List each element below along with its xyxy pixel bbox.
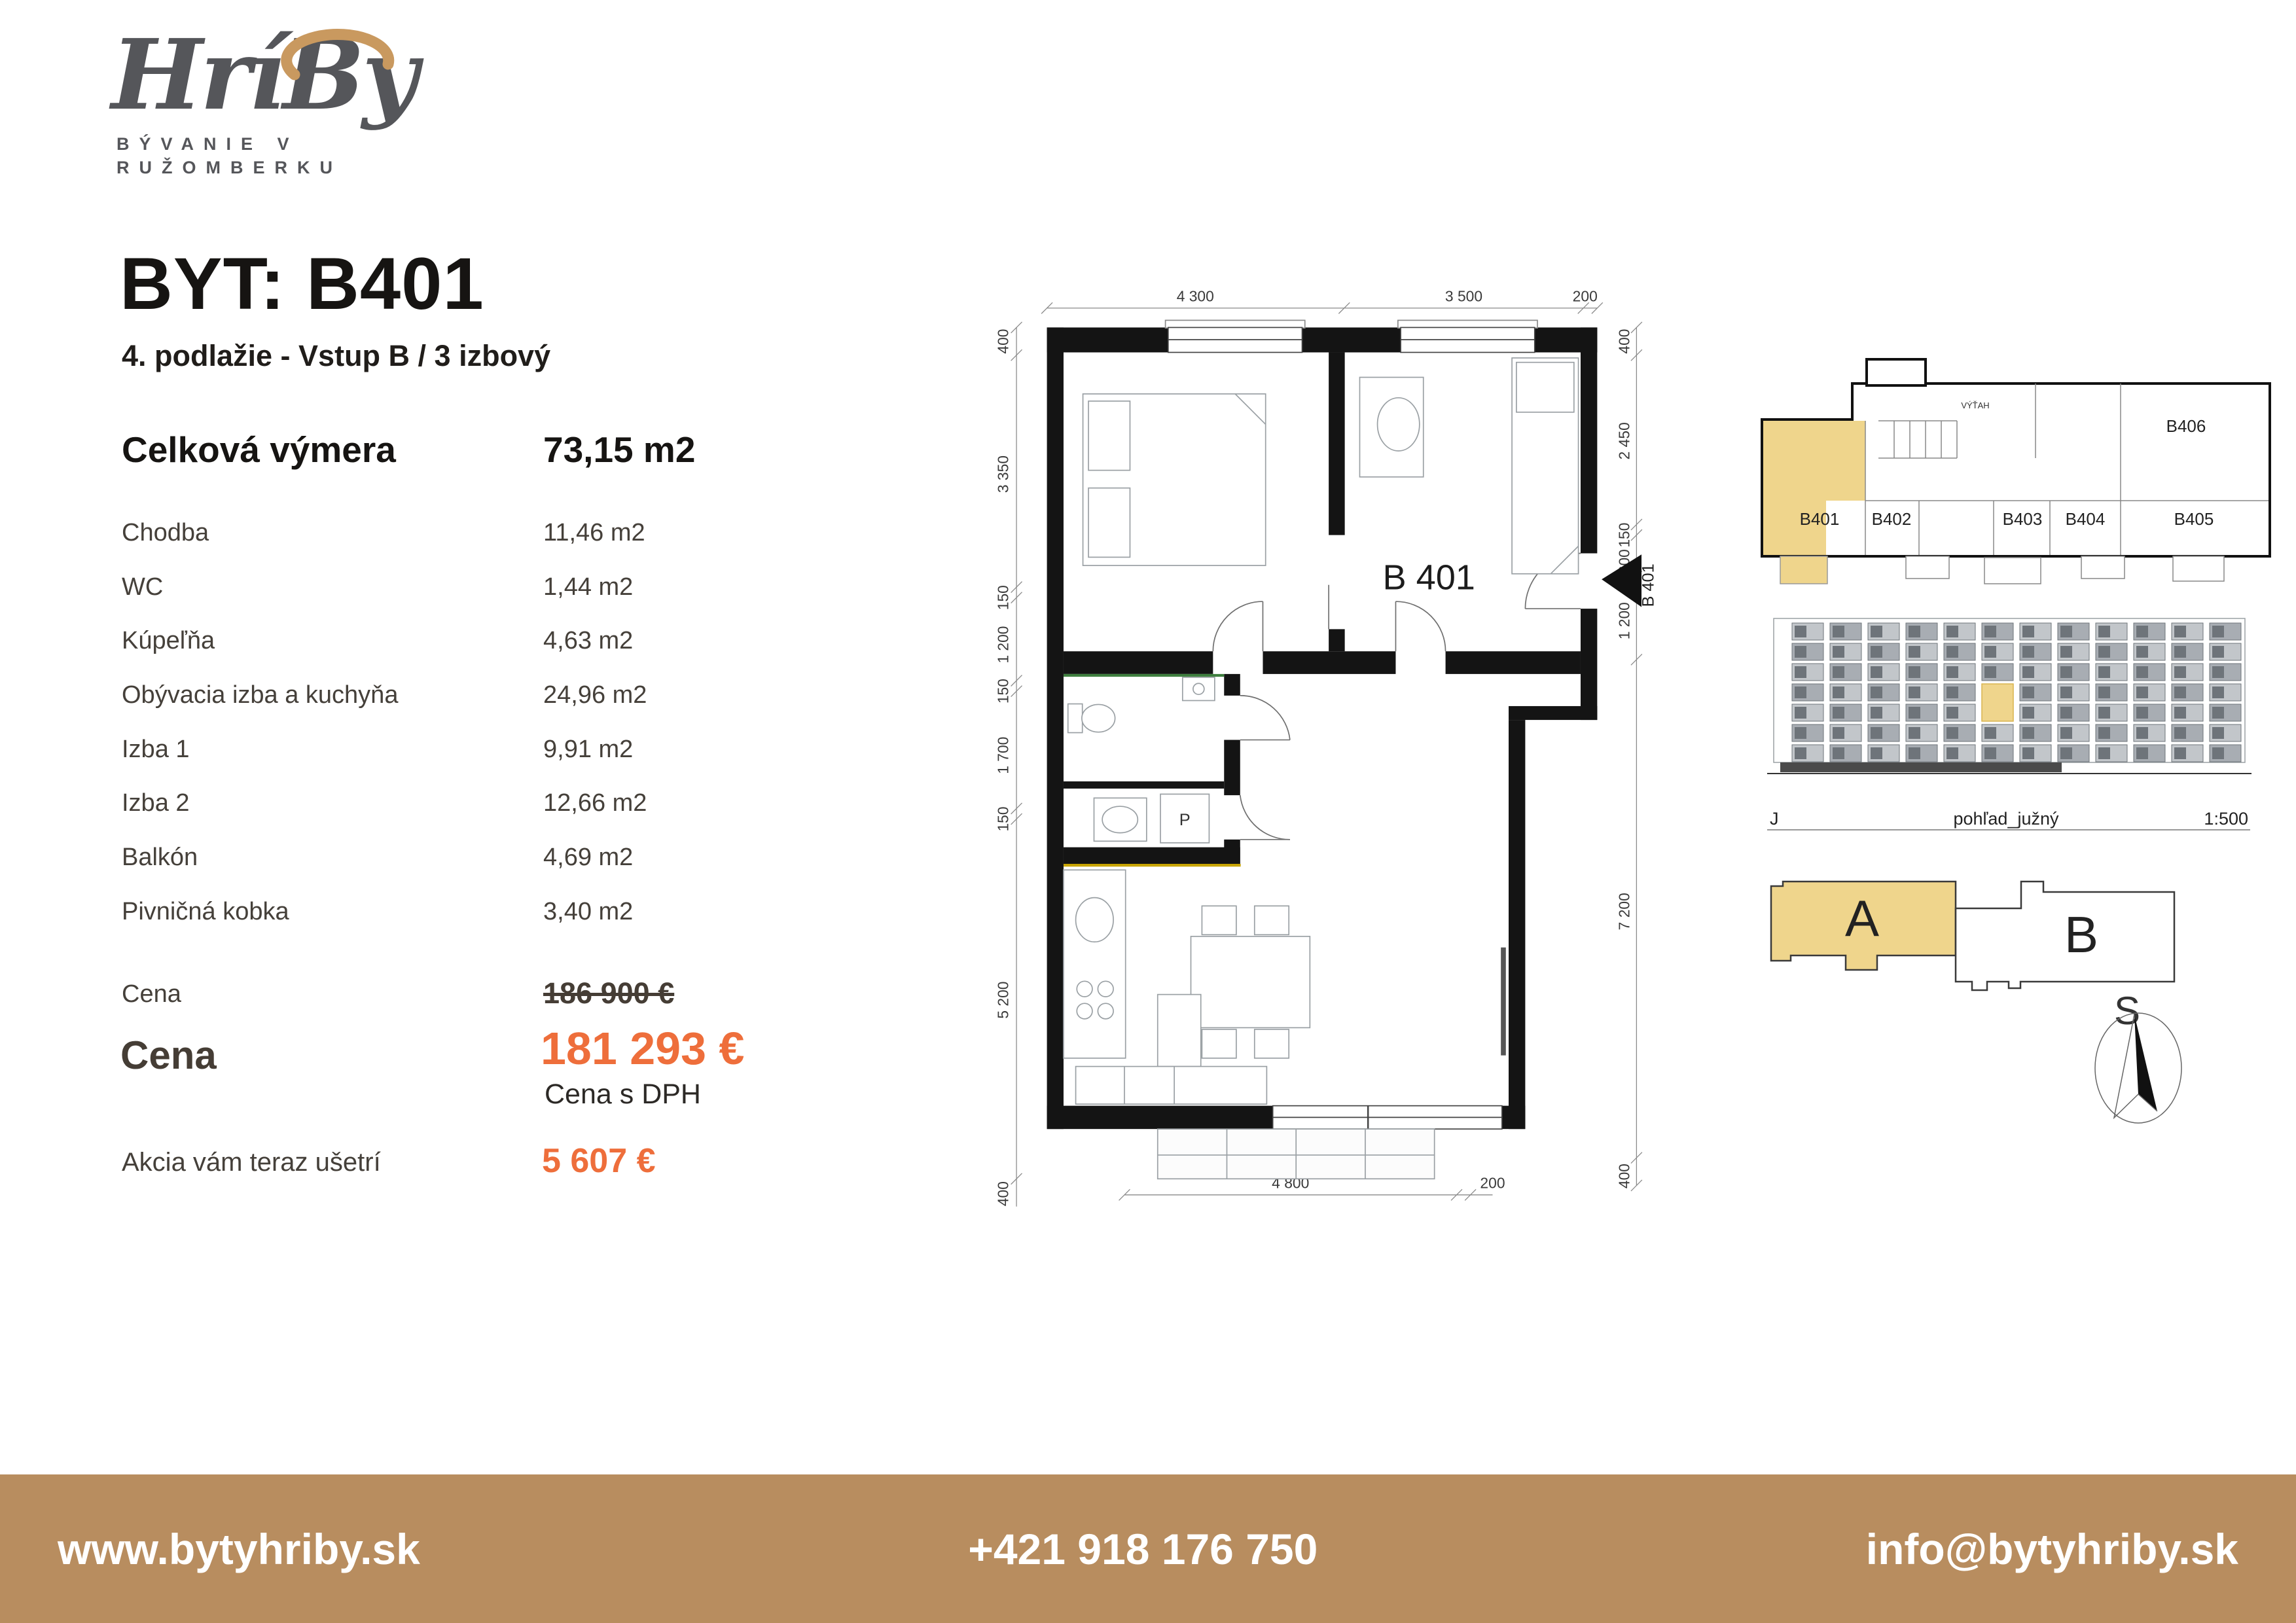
svg-text:1:500: 1:500 [2204,809,2248,829]
logo-tagline-1: BÝVANIE V [117,132,416,156]
svg-text:B401: B401 [1800,509,1840,529]
elevator-label: VÝŤAH [1961,401,1989,410]
site-plan-drawing: B401 B402 B403 B404 B405 B406 VÝŤAH [1754,353,2278,596]
balcony [1158,1129,1435,1179]
room-row-label: WC [122,573,163,601]
block-a-label: A [1845,889,1879,947]
room-row-value: 12,66 m2 [543,789,647,817]
footer-bar: www.bytyhriby.sk +421 918 176 750 info@b… [0,1474,2296,1623]
elevation-caption: J pohľad_južný 1:500 [1767,809,2250,830]
logo-mushroom-arc-icon [278,18,403,84]
svg-text:1 700: 1 700 [994,737,1011,774]
room-row-value: 24,96 m2 [543,681,647,709]
new-price-label: Cena [120,1033,217,1078]
tv-icon [1501,948,1506,1056]
svg-text:150: 150 [994,806,1011,831]
entry-arrow-icon: B 401 [1602,554,1658,607]
svg-text:200: 200 [1573,288,1598,305]
svg-text:J: J [1770,809,1779,829]
washer-label: P [1179,811,1191,829]
entry-unit-label: B 401 [1640,563,1658,607]
flyer-page: HríBy BÝVANIE V RUŽOMBERKU BYT: B401 4. … [0,0,2296,1623]
svg-text:5 200: 5 200 [994,982,1011,1019]
elevation-drawing: J pohľad_južný 1:500 [1761,609,2258,834]
svg-text:400: 400 [1615,329,1632,353]
brand-logo: HríBy BÝVANIE V RUŽOMBERKU [111,26,416,180]
block-b-label: B [2064,906,2098,963]
svg-text:B406: B406 [2166,416,2206,436]
svg-text:1 200: 1 200 [994,626,1011,663]
svg-text:400: 400 [994,1181,1011,1206]
savings-label: Akcia vám teraz ušetrí [122,1148,381,1177]
room-row-label: Balkón [122,844,198,872]
room-row-label: Chodba [122,519,209,547]
footer-website[interactable]: www.bytyhriby.sk [58,1524,420,1574]
room-row-label: Izba 2 [122,789,190,817]
svg-text:B403: B403 [2003,509,2043,529]
floorplan-drawing: 4 300 3 500 200 4 800 200 400 3 350 150 [992,275,1656,1216]
vat-note: Cena s DPH [545,1079,701,1111]
unit-label: B 401 [1382,558,1475,597]
page-subtitle: 4. podlažie - Vstup B / 3 izbový [122,339,550,373]
block-schematic: A B S [1728,870,2225,1132]
room-row-value: 1,44 m2 [543,573,633,601]
total-area-value: 73,15 m2 [543,429,695,471]
svg-text:3 350: 3 350 [994,455,1011,493]
footer-email[interactable]: info@bytyhriby.sk [1866,1524,2238,1574]
page-title: BYT: B401 [120,247,484,321]
svg-text:B404: B404 [2066,509,2106,529]
svg-text:200: 200 [1480,1175,1505,1192]
svg-text:pohľad_južný: pohľad_južný [1954,809,2059,829]
room-row-label: Izba 1 [122,736,190,764]
room-row-label: Obývacia izba a kuchyňa [122,681,398,709]
room-row-value: 3,40 m2 [543,898,633,926]
room-row-value: 4,69 m2 [543,844,633,872]
room-row-label: Kúpeľňa [122,627,215,655]
svg-text:150: 150 [994,585,1011,610]
old-price-value: 186 900 € [543,976,674,1010]
svg-text:150: 150 [994,679,1011,704]
room-row-label: Pivničná kobka [122,898,289,926]
old-price-label: Cena [122,980,181,1008]
furniture: P [1064,358,1579,1104]
svg-text:3 500: 3 500 [1445,288,1482,305]
elevation-highlight [1982,684,2013,721]
svg-text:B405: B405 [2174,509,2214,529]
svg-text:150: 150 [1615,523,1632,548]
svg-text:1 200: 1 200 [1615,602,1632,639]
logo-tagline-2: RUŽOMBERKU [117,156,416,179]
svg-text:4 300: 4 300 [1177,288,1214,305]
total-area-label: Celková výmera [122,429,396,471]
savings-value: 5 607 € [542,1141,656,1181]
footer-phone[interactable]: +421 918 176 750 [968,1524,1318,1574]
room-row-value: 9,91 m2 [543,736,633,764]
new-price-value: 181 293 € [541,1022,744,1075]
room-row-value: 11,46 m2 [543,519,645,547]
svg-text:2 450: 2 450 [1615,422,1632,459]
room-row-value: 4,63 m2 [543,627,633,655]
svg-text:400: 400 [994,329,1011,353]
svg-text:B402: B402 [1872,509,1912,529]
svg-text:7 200: 7 200 [1615,893,1632,930]
svg-text:400: 400 [1615,1164,1632,1188]
